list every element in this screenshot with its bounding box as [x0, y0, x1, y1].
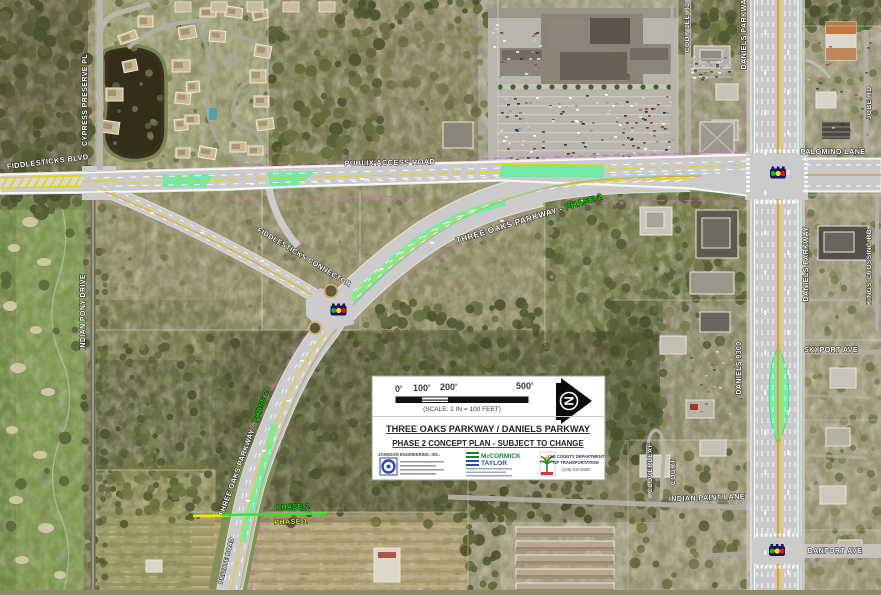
- svg-text:DANIELS 9300: DANIELS 9300: [736, 341, 743, 394]
- svg-text:McCORMICK: McCORMICK: [481, 453, 521, 460]
- svg-text:PHASE 2 CONCEPT PLAN - SUBJECT: PHASE 2 CONCEPT PLAN - SUBJECT TO CHANGE: [392, 439, 583, 448]
- svg-text:PHASE 2: PHASE 2: [276, 501, 310, 511]
- svg-text:PUBLIX ACCESS ROAD: PUBLIX ACCESS ROAD: [345, 157, 436, 168]
- svg-text:THREE OAKS PARKWAY / DANIELS P: THREE OAKS PARKWAY / DANIELS PARKWAY: [386, 424, 590, 434]
- svg-text:INDIAN PONY DRIVE: INDIAN PONY DRIVE: [80, 274, 87, 350]
- svg-text:N: N: [562, 396, 577, 405]
- svg-text:JOBE RD: JOBE RD: [866, 86, 873, 119]
- svg-text:CLOVERLEAF: CLOVERLEAF: [647, 443, 654, 493]
- svg-text:(239) 533-8580: (239) 533-8580: [562, 467, 591, 472]
- svg-text:PALOMINO LANE: PALOMINO LANE: [801, 147, 866, 156]
- svg-text:PHASE 1: PHASE 1: [274, 516, 308, 526]
- svg-text:OF TRANSPORTATION: OF TRANSPORTATION: [553, 460, 598, 465]
- svg-text:COURT: COURT: [670, 458, 677, 485]
- svg-text:100': 100': [413, 383, 430, 393]
- svg-text:500': 500': [516, 381, 533, 391]
- svg-text:LEE COUNTY DEPARTMENT: LEE COUNTY DEPARTMENT: [548, 454, 605, 459]
- svg-text:DANIELS PARKWAY: DANIELS PARKWAY: [739, 0, 748, 70]
- svg-text:TAYLOR: TAYLOR: [481, 460, 507, 467]
- svg-text:DANIELS PARKWAY: DANIELS PARKWAY: [801, 226, 810, 301]
- svg-text:200': 200': [440, 382, 457, 392]
- svg-text:CYPRESS PRESERVE PL: CYPRESS PRESERVE PL: [82, 54, 89, 146]
- svg-text:DANPORT AVE: DANPORT AVE: [808, 548, 863, 555]
- svg-text:(SCALE: 1 IN = 100 FEET): (SCALE: 1 IN = 100 FEET): [423, 406, 501, 413]
- svg-text:0': 0': [395, 384, 402, 394]
- svg-text:CODY LEE RD: CODY LEE RD: [684, 2, 691, 53]
- svg-text:KINGS CROSSING RD: KINGS CROSSING RD: [866, 229, 873, 305]
- svg-text:JOHNSON ENGINEERING, INC.: JOHNSON ENGINEERING, INC.: [378, 452, 440, 457]
- svg-text:SKYPORT AVE: SKYPORT AVE: [804, 347, 858, 354]
